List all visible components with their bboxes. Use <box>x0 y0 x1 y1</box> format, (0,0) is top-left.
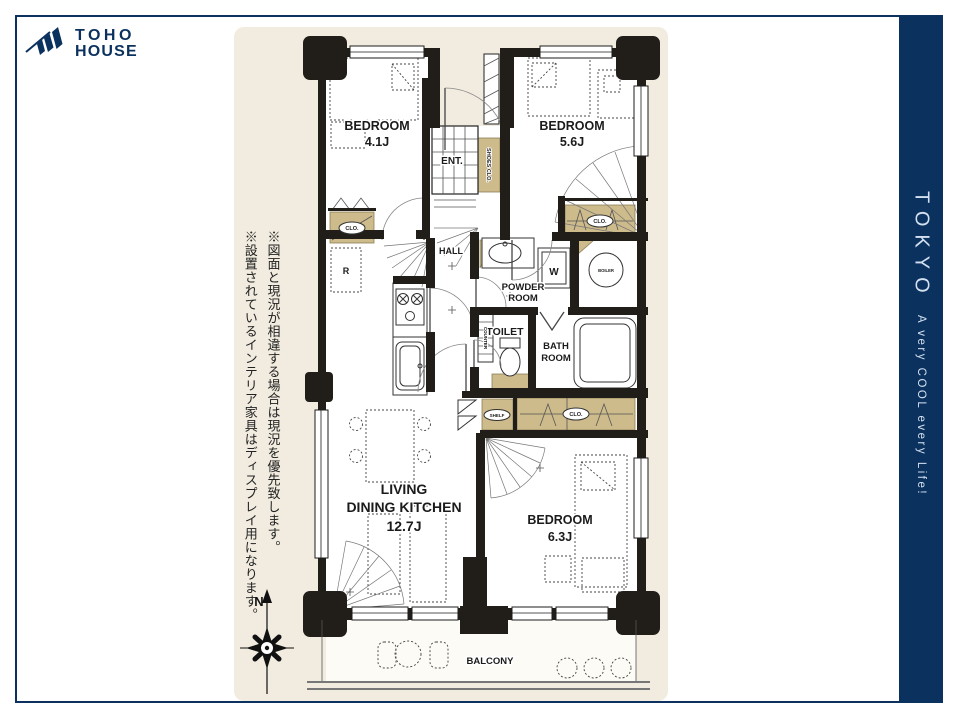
toho-house-logo-icon <box>24 26 68 62</box>
label-shelf: SHELF <box>490 413 505 418</box>
label-bedroom3-size: 6.3J <box>548 530 572 544</box>
side-banner: TOKYO A very COOL every Life! <box>899 15 943 703</box>
kitchen <box>393 283 427 395</box>
brand-line1: TOHO <box>75 28 138 44</box>
banner-title: TOKYO <box>910 191 933 301</box>
label-ldk-3: 12.7J <box>386 518 421 534</box>
brand-line2: HOUSE <box>75 44 138 60</box>
label-shoes-closet: SHOES CLO. <box>485 148 491 182</box>
label-counter: COUNTER <box>483 327 488 350</box>
disclaimer-line2: ※設置されているインテリア家具はディスプレイ用になります。 <box>238 230 261 640</box>
label-fridge: R <box>343 266 350 276</box>
brand-logo: TOHO HOUSE <box>24 26 138 62</box>
label-closet-1: CLO. <box>345 226 359 232</box>
label-bath-1: BATH <box>543 341 569 352</box>
compass-north-label: N <box>254 594 263 609</box>
label-bedroom2-name: BEDROOM <box>539 119 604 133</box>
label-powder-1: POWDER <box>502 282 545 293</box>
label-bedroom1-size: 4.1J <box>365 135 389 149</box>
brand-name: TOHO HOUSE <box>75 28 138 60</box>
label-closet-2: CLO. <box>593 219 607 225</box>
compass-icon: N <box>230 585 300 700</box>
flyer-page: { "colors":{"navy":"#0b315f","navy_text"… <box>0 0 960 720</box>
label-boiler: BOILER <box>598 268 614 273</box>
label-hall: HALL <box>439 246 463 256</box>
label-entrance: ENT. <box>441 156 463 167</box>
label-powder-2: ROOM <box>508 293 538 304</box>
label-bedroom2-size: 5.6J <box>560 135 584 149</box>
label-bedroom1-name: BEDROOM <box>344 119 409 133</box>
label-closet-3: CLO. <box>569 412 583 418</box>
floorplan-drawing: BEDROOM 4.1J BEDROOM 5.6J ENT. SHOES CLO… <box>296 30 668 702</box>
label-washer: W <box>549 267 559 278</box>
label-bedroom3-name: BEDROOM <box>527 513 592 527</box>
disclaimer-text: ※図面と現況が相違する場合は現況を優先致します。 ※設置されているインテリア家具… <box>238 230 284 640</box>
banner-tagline: A very COOL every Life! <box>915 315 927 496</box>
label-ldk-2: DINING KITCHEN <box>346 499 461 515</box>
label-balcony: BALCONY <box>467 656 515 667</box>
label-bath-2: ROOM <box>541 353 571 364</box>
disclaimer-line1: ※図面と現況が相違する場合は現況を優先致します。 <box>261 230 284 640</box>
label-toilet: TOILET <box>486 326 524 338</box>
label-ldk-1: LIVING <box>381 481 428 497</box>
